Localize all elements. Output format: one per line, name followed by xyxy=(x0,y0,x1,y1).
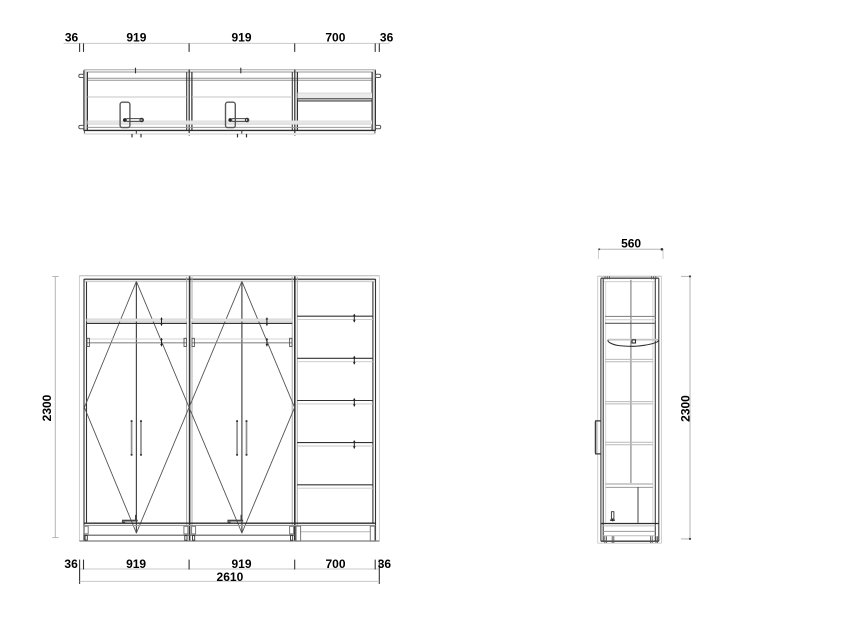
svg-text:2300: 2300 xyxy=(678,395,692,422)
svg-text:560: 560 xyxy=(621,237,641,251)
svg-text:919: 919 xyxy=(231,31,251,45)
svg-text:2610: 2610 xyxy=(217,570,244,584)
svg-text:2300: 2300 xyxy=(40,394,54,421)
svg-text:919: 919 xyxy=(126,557,146,571)
svg-text:36: 36 xyxy=(380,31,394,45)
svg-text:36: 36 xyxy=(378,557,392,571)
svg-text:700: 700 xyxy=(325,31,345,45)
svg-text:700: 700 xyxy=(325,557,345,571)
svg-text:919: 919 xyxy=(126,31,146,45)
svg-text:36: 36 xyxy=(65,31,79,45)
svg-text:36: 36 xyxy=(64,557,78,571)
